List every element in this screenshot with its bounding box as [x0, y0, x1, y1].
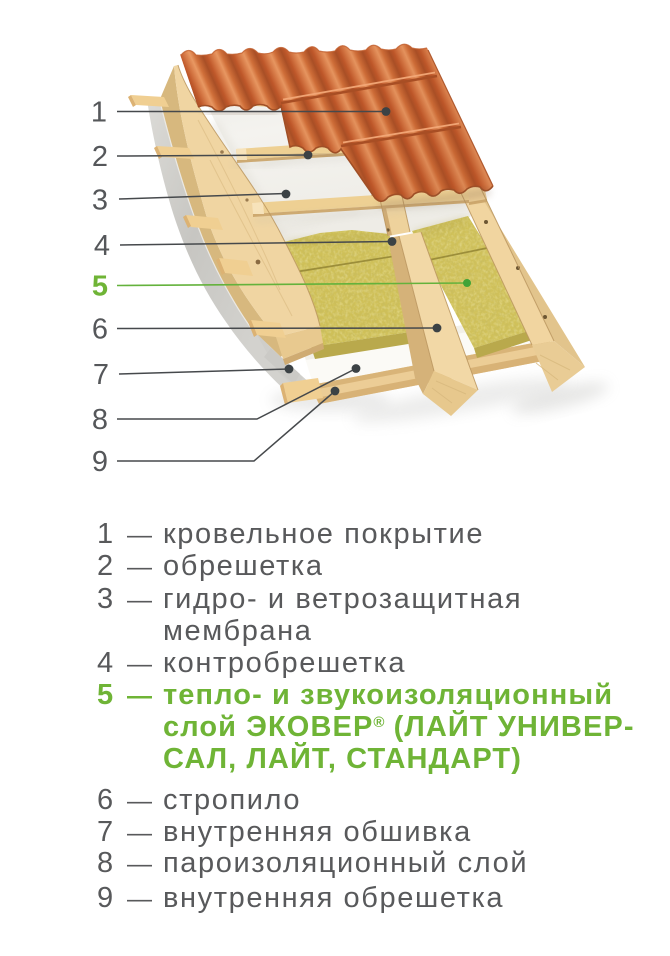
svg-text:7: 7	[93, 359, 109, 391]
svg-text:4: 4	[94, 230, 110, 262]
svg-text:1: 1	[91, 97, 107, 129]
svg-text:6: 6	[92, 314, 108, 346]
svg-text:3: 3	[92, 185, 108, 217]
svg-text:8: 8	[92, 404, 108, 436]
svg-text:9: 9	[92, 446, 108, 478]
svg-text:2: 2	[92, 141, 108, 173]
svg-text:5: 5	[92, 271, 108, 303]
